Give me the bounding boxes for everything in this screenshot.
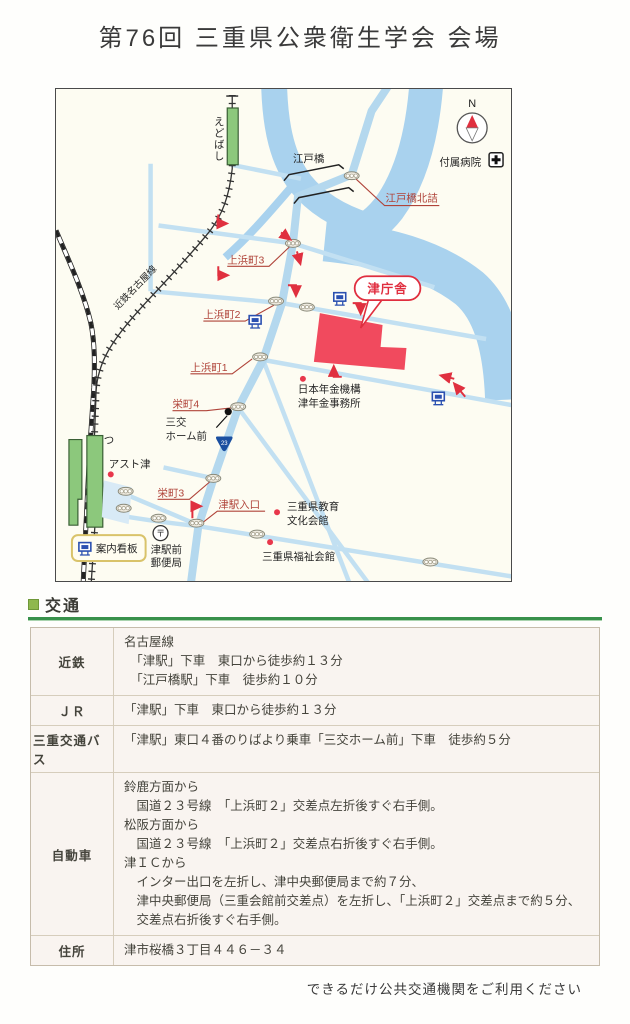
row-line: インター出口を左折し、津中央郵便局まで約７分、 bbox=[124, 873, 589, 892]
green-square-bullet-icon bbox=[28, 599, 39, 610]
transport-table: 近鉄 名古屋線 「津駅」下車 東口から徒歩約１３分 「江戸橋駅」下車 徒歩約１０… bbox=[30, 627, 600, 966]
row-header: 住所 bbox=[31, 936, 114, 965]
tsu-station-label: つ bbox=[104, 436, 114, 447]
sanko-label-1: 三交 bbox=[166, 416, 187, 429]
post-office-label-2: 郵便局 bbox=[151, 556, 182, 569]
post-office-label-1: 津駅前 bbox=[151, 543, 182, 556]
map-canvas: 津庁舎 23 〒 N bbox=[56, 89, 511, 581]
table-row-kintetsu: 近鉄 名古屋線 「津駅」下車 東口から徒歩約１３分 「江戸橋駅」下車 徒歩約１０… bbox=[31, 628, 599, 695]
route23-shield: 23 bbox=[216, 437, 233, 452]
kamihama2-label: 上浜町2 bbox=[203, 309, 240, 321]
route23-number: 23 bbox=[221, 441, 228, 447]
row-line: 津ＩＣから bbox=[124, 854, 589, 873]
compass-icon: N bbox=[457, 98, 487, 143]
tsu-station-platform-left bbox=[69, 440, 82, 526]
row-header: 近鉄 bbox=[31, 628, 114, 695]
page-title: 第76回 三重県公衆衛生学会 会場 bbox=[0, 18, 600, 53]
hospital-label: 付属病院 bbox=[439, 156, 481, 169]
hospital-cross-icon bbox=[489, 153, 503, 167]
row-line: 交差点右折後すぐ右手側。 bbox=[124, 911, 589, 930]
edobashi-station-platform bbox=[227, 108, 238, 165]
row-line: 津市桜橋３丁目４４６－３４ bbox=[124, 941, 589, 960]
row-header: 自動車 bbox=[31, 773, 114, 935]
edobashi-bridge-label: 江戸橋 bbox=[293, 152, 325, 165]
row-line: 「津駅」下車 東口から徒歩約１３分 bbox=[124, 652, 589, 671]
transport-section-heading: 交通 bbox=[28, 592, 81, 616]
row-header: 三重交通バス bbox=[31, 726, 114, 772]
green-divider bbox=[28, 617, 602, 621]
nenkin-label-1: 日本年金機構 bbox=[298, 383, 361, 396]
jr-line bbox=[56, 230, 94, 581]
post-mark: 〒 bbox=[156, 529, 165, 539]
row-line: 「江戸橋駅」下車 徒歩約１０分 bbox=[124, 671, 589, 690]
sakaemachi4-label: 栄町4 bbox=[172, 398, 199, 411]
kamihama1-label: 上浜町1 bbox=[190, 362, 227, 374]
table-row-jr: ＪＲ 「津駅」下車 東口から徒歩約１３分 bbox=[31, 695, 599, 725]
kyoiku-label-1: 三重県教育 bbox=[287, 500, 339, 513]
sanko-label-2: ホーム前 bbox=[166, 430, 207, 443]
edobashi-station-label: えどばし bbox=[213, 116, 224, 162]
document-page: 第76回 三重県公衆衛生学会 会場 bbox=[0, 0, 630, 1024]
venue-label: 津庁舎 bbox=[367, 281, 407, 296]
legend-label: 案内看板 bbox=[96, 542, 138, 555]
sakaemachi3-label: 栄町3 bbox=[158, 486, 185, 499]
kyoiku-label-2: 文化会館 bbox=[287, 514, 329, 527]
tsueki-iriguchi-label: 津駅入口 bbox=[218, 499, 260, 511]
nenkin-label-2: 津年金事務所 bbox=[298, 397, 361, 410]
footer-note: できるだけ公共交通機関をご利用ください bbox=[307, 978, 582, 998]
row-line: 名古屋線 bbox=[124, 633, 589, 652]
transport-heading-text: 交通 bbox=[45, 592, 81, 616]
table-row-address: 住所 津市桜橋３丁目４４６－３４ bbox=[31, 935, 599, 965]
venue-map: 津庁舎 23 〒 N bbox=[55, 88, 512, 582]
row-line: 「津駅」東口４番のりばより乗車「三交ホーム前」下車 徒歩約５分 bbox=[124, 731, 589, 750]
legend-annai-kanban: 案内看板 bbox=[72, 535, 146, 561]
compass-n: N bbox=[468, 98, 476, 110]
kamihama3-label: 上浜町3 bbox=[227, 254, 264, 266]
row-line: 「津駅」下車 東口から徒歩約１３分 bbox=[124, 701, 589, 720]
row-line: 国道２３号線 「上浜町２」交差点右折後すぐ右手側。 bbox=[124, 835, 589, 854]
table-row-bus: 三重交通バス 「津駅」東口４番のりばより乗車「三交ホーム前」下車 徒歩約５分 bbox=[31, 725, 599, 772]
ast-tsu-label: アスト津 bbox=[109, 458, 151, 470]
fukushi-label: 三重県福祉会館 bbox=[262, 550, 335, 563]
row-line: 松阪方面から bbox=[124, 816, 589, 835]
row-line: 鈴鹿方面から bbox=[124, 778, 589, 797]
tsu-station-platform-right bbox=[87, 436, 103, 528]
row-header: ＪＲ bbox=[31, 696, 114, 725]
edobashi-kitazume-label: 江戸橋北詰 bbox=[386, 192, 439, 205]
table-row-car: 自動車 鈴鹿方面から 国道２３号線 「上浜町２」交差点左折後すぐ右手側。 松阪方… bbox=[31, 772, 599, 935]
row-line: 国道２３号線 「上浜町２」交差点左折後すぐ右手側。 bbox=[124, 797, 589, 816]
post-office-icon: 〒 bbox=[153, 526, 168, 541]
row-line: 津中央郵便局（三重会館前交差点）を左折し、「上浜町２」交差点まで約５分、 bbox=[124, 892, 589, 911]
